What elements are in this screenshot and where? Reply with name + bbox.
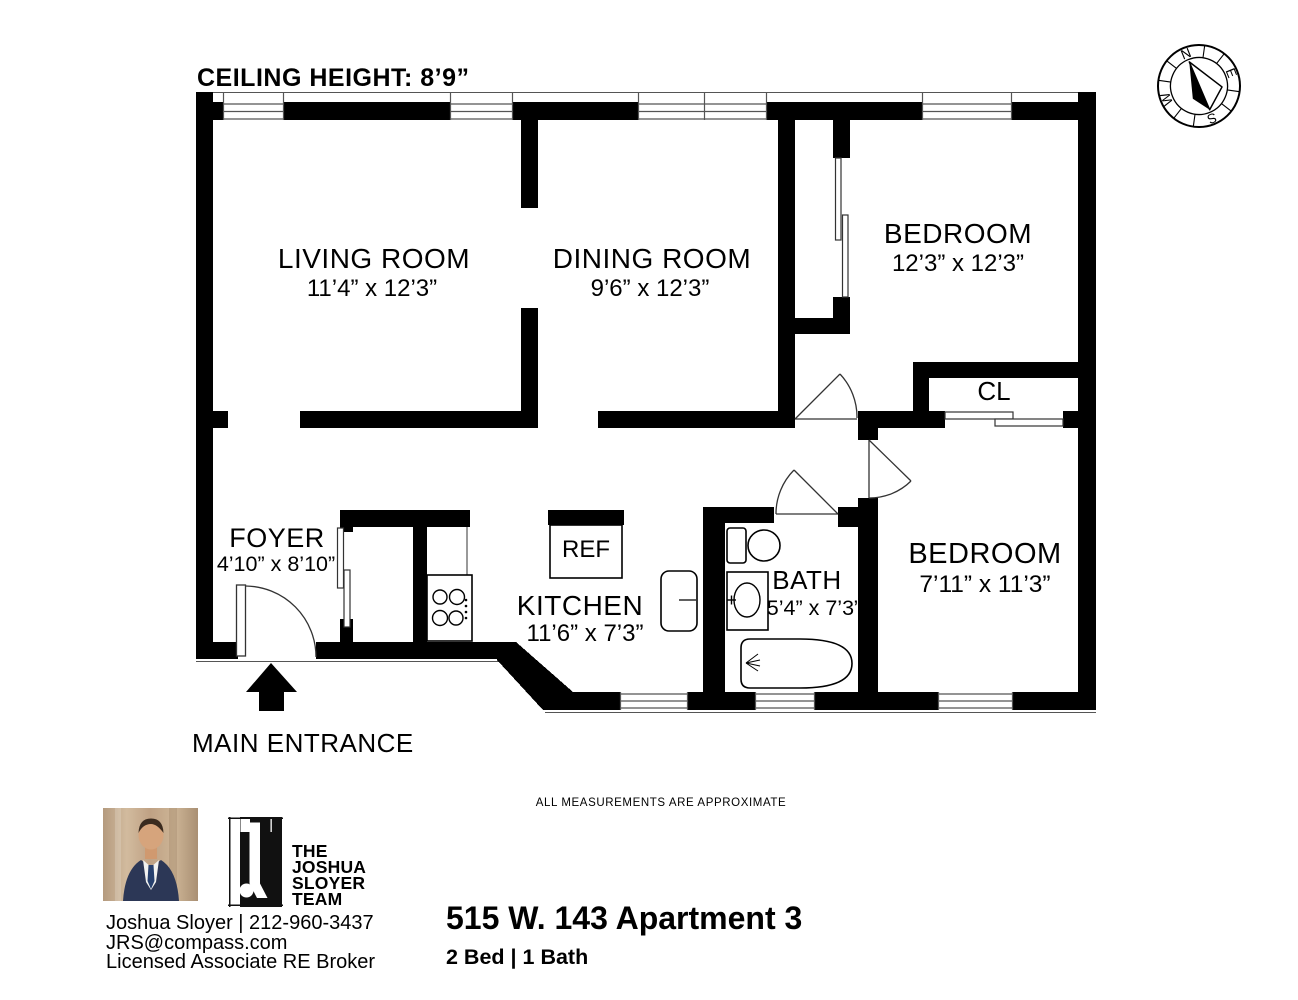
team-line: TEAM: [292, 889, 342, 909]
dining-room-dims: 9’6” x 12’3”: [591, 275, 710, 302]
living-room-label: LIVING ROOM: [278, 243, 470, 274]
agent-license: Licensed Associate RE Broker: [106, 951, 375, 973]
ceiling-height-label: CEILING HEIGHT: 8’9”: [197, 64, 470, 92]
bath-label: BATH: [772, 565, 841, 595]
dining-window: [638, 93, 767, 120]
compass-north-label: N: [1179, 45, 1194, 63]
compass-rose: N E S W: [1144, 31, 1254, 141]
kitchen-label: KITCHEN: [517, 590, 643, 621]
stove: [427, 575, 472, 641]
agent-photo: [103, 808, 198, 901]
compass-west-label: W: [1157, 90, 1176, 108]
bedroom2-window: [938, 692, 1013, 710]
team-name: THE JOSHUA SLOYER TEAM: [292, 841, 366, 909]
entry-door: [237, 585, 317, 657]
bedroom1-closet-door-panel: [836, 158, 842, 240]
main-entrance-arrow: [246, 663, 297, 711]
exterior-walls: [196, 92, 1096, 713]
listing-details: 2 Bed | 1 Bath: [446, 945, 588, 969]
bedroom2-door: [869, 440, 911, 498]
foyer-closet-door-panel: [344, 570, 350, 627]
listing-title: 515 W. 143 Apartment 3: [446, 900, 802, 936]
bathtub: [741, 639, 852, 688]
foyer-label: FOYER: [229, 523, 325, 553]
disclaimer-text: ALL MEASUREMENTS ARE APPROXIMATE: [536, 797, 787, 809]
bath-dims: 5’4” x 7’3”: [767, 596, 861, 620]
floorplan-svg: CEILING HEIGHT: 8’9” N E S W: [0, 0, 1298, 1000]
foyer-closet-door-panel: [338, 528, 344, 588]
main-entrance-label: MAIN ENTRANCE: [192, 728, 414, 758]
compass-east-label: E: [1223, 66, 1240, 80]
kitchen-window: [620, 692, 688, 710]
dining-room-label: DINING ROOM: [553, 243, 751, 274]
bedroom1-label: BEDROOM: [884, 218, 1032, 249]
foyer-dims: 4’10” x 8’10”: [217, 552, 335, 576]
cl-closet-door-panel: [995, 419, 1063, 426]
agent-contact: Joshua Sloyer | 212-960-3437: [106, 912, 374, 934]
bedroom2-label: BEDROOM: [908, 538, 1061, 570]
team-logo: [228, 817, 283, 907]
cl-closet-door-panel: [945, 412, 1013, 419]
closet-label: CL: [977, 376, 1010, 406]
living-room-dims: 11’4” x 12’3”: [307, 275, 437, 302]
kitchen-sink: [661, 571, 697, 631]
bath-door: [776, 470, 838, 514]
kitchen-dims: 11’6” x 7’3”: [527, 620, 644, 647]
footer: THE JOSHUA SLOYER TEAM Joshua Sloyer | 2…: [103, 808, 802, 973]
compass-south-label: S: [1205, 110, 1219, 127]
toilet: [727, 528, 780, 563]
ref-label: REF: [562, 536, 610, 563]
bedroom1-closet-door-panel: [843, 215, 849, 297]
floorplan-page: CEILING HEIGHT: 8’9” N E S W: [0, 0, 1298, 1000]
bath-window: [755, 692, 815, 710]
bedroom1-window: [922, 93, 1012, 120]
living-window-1: [223, 93, 284, 120]
bedroom1-dims: 12’3” x 12’3”: [892, 250, 1024, 277]
living-window-2: [450, 93, 513, 120]
bedroom2-dims: 7’11” x 11’3”: [919, 571, 1050, 598]
bath-sink: [727, 572, 768, 630]
bedroom1-door: [795, 374, 857, 419]
